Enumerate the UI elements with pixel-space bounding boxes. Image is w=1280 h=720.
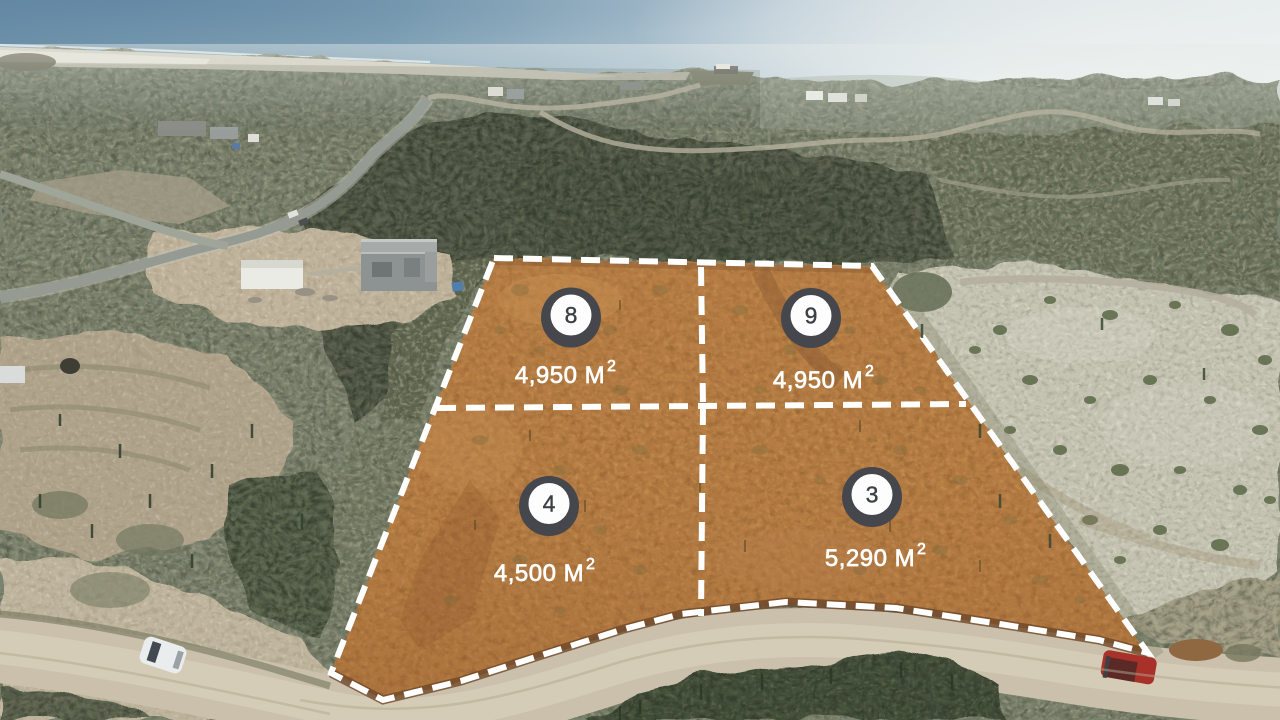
svg-text:3: 3 — [866, 482, 879, 508]
svg-text:4,950 M: 4,950 M — [773, 367, 863, 394]
svg-text:2: 2 — [917, 541, 926, 558]
svg-text:5,290 M: 5,290 M — [825, 545, 915, 572]
svg-text:2: 2 — [865, 363, 874, 380]
svg-text:2: 2 — [586, 556, 595, 573]
svg-text:4,950 M: 4,950 M — [515, 362, 605, 389]
svg-text:4,500 M: 4,500 M — [494, 560, 584, 587]
svg-text:8: 8 — [565, 302, 578, 328]
svg-text:4: 4 — [543, 491, 556, 517]
svg-text:9: 9 — [805, 303, 818, 329]
svg-text:2: 2 — [607, 358, 616, 375]
